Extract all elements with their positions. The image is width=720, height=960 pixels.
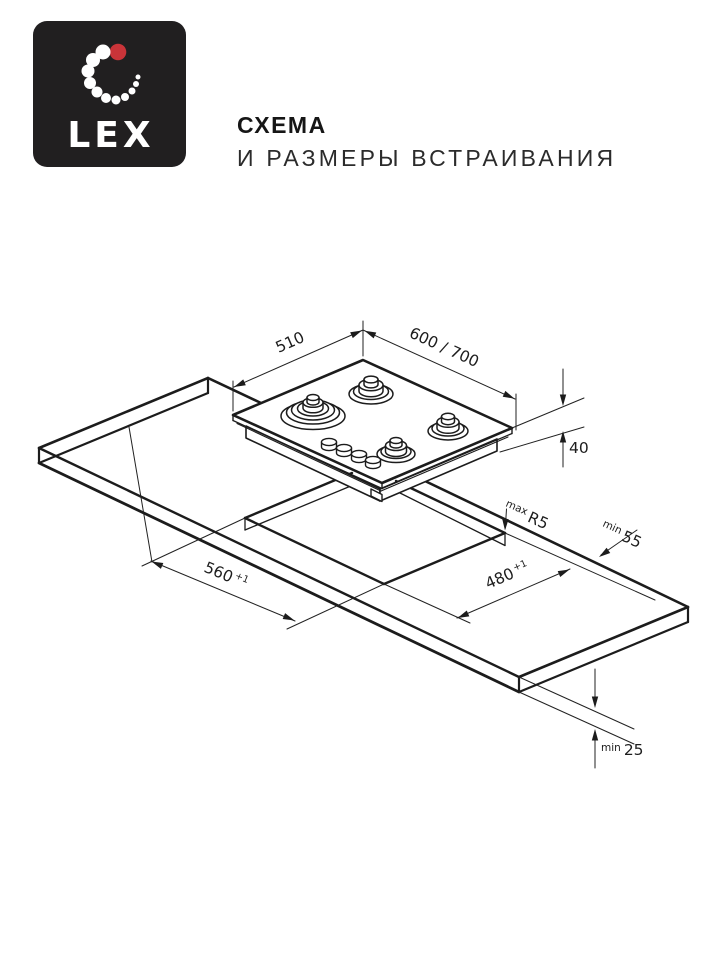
manual-page: LEX СХЕМА И РАЗМЕРЫ ВСТРАИВАНИЯ [0, 0, 720, 960]
dimension-label-600-700: 600 / 700 [407, 324, 482, 371]
dimension-label-min-55: min55 [598, 518, 644, 552]
dimension-label-510: 510 [273, 328, 307, 356]
dimension-label-40: 40 [569, 439, 589, 457]
dimension-label-560: 560+1 [201, 558, 250, 592]
dimension-label-min-25: min25 [601, 741, 644, 759]
installation-diagram: 560+1 480+1 maxR5 min55 min25 [0, 0, 720, 960]
